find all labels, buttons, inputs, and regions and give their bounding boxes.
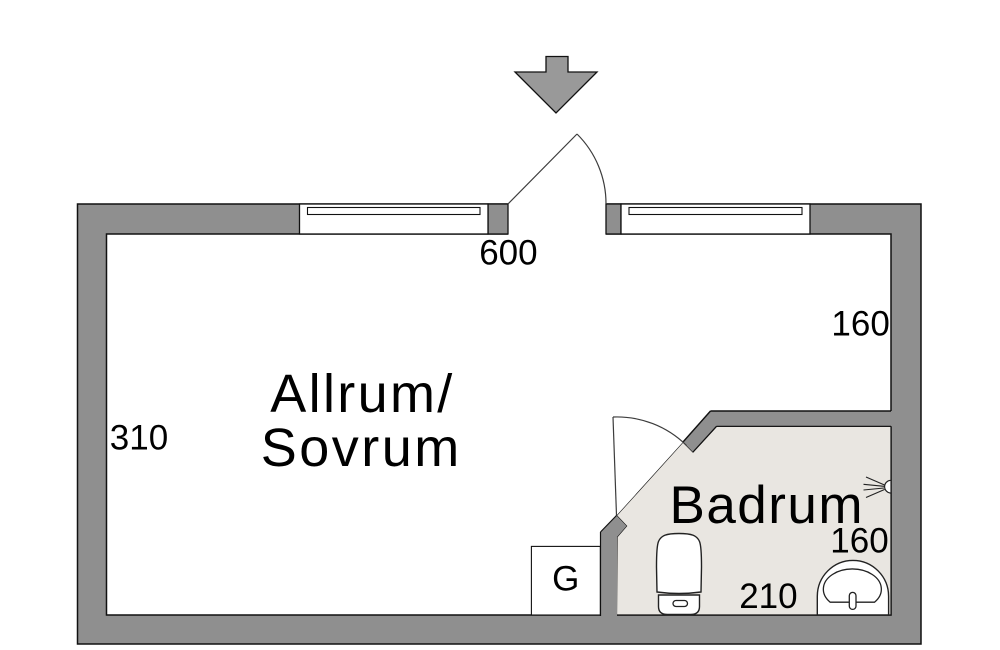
svg-text:Allrum/: Allrum/	[270, 364, 452, 424]
svg-text:160: 160	[831, 305, 889, 344]
svg-text:Sovrum: Sovrum	[261, 418, 460, 478]
svg-text:600: 600	[479, 234, 537, 273]
svg-text:Badrum: Badrum	[670, 476, 863, 535]
svg-text:210: 210	[739, 577, 797, 616]
svg-text:G: G	[552, 560, 579, 599]
svg-text:310: 310	[110, 419, 168, 458]
